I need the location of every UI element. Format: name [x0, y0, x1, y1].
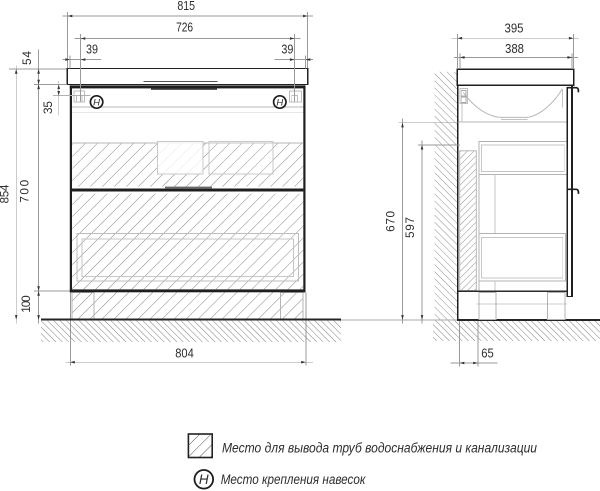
- svg-text:100: 100: [19, 295, 33, 313]
- svg-text:H: H: [93, 97, 100, 108]
- svg-text:700: 700: [17, 179, 31, 202]
- svg-text:815: 815: [177, 0, 195, 13]
- svg-text:388: 388: [505, 41, 524, 56]
- svg-text:854: 854: [0, 184, 12, 203]
- svg-text:597: 597: [403, 217, 417, 238]
- svg-text:726: 726: [176, 19, 193, 34]
- svg-text:670: 670: [383, 210, 397, 231]
- svg-text:54: 54: [20, 51, 34, 65]
- svg-text:H: H: [276, 97, 283, 108]
- svg-text:Место крепления навесок: Место крепления навесок: [221, 472, 366, 487]
- svg-text:65: 65: [481, 345, 494, 360]
- svg-text:H: H: [199, 472, 209, 487]
- svg-text:Место для вывода труб водоснаб: Место для вывода труб водоснабжения и ка…: [222, 440, 537, 455]
- svg-text:804: 804: [175, 346, 194, 361]
- svg-text:39: 39: [281, 41, 293, 56]
- svg-text:35: 35: [41, 101, 55, 114]
- svg-text:39: 39: [86, 41, 98, 56]
- svg-text:395: 395: [505, 20, 524, 35]
